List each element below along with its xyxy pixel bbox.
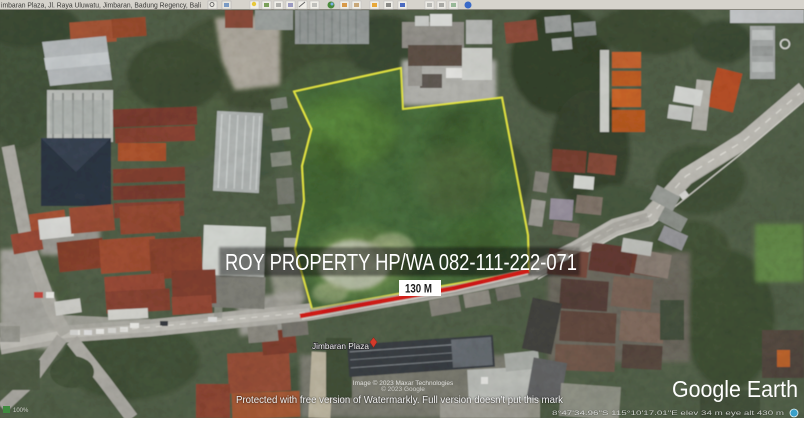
svg-text:130 M: 130 M xyxy=(405,282,432,296)
svg-text:ROY PROPERTY HP/WA 082-111-222: ROY PROPERTY HP/WA 082-111-222-071 xyxy=(225,249,577,275)
svg-text:Protected with free version of: Protected with free version of Watermark… xyxy=(236,394,564,406)
svg-text:imbaran Plaza, Jl. Raya Uluwat: imbaran Plaza, Jl. Raya Uluwatu, Jimbara… xyxy=(1,1,201,10)
svg-text:Google Earth: Google Earth xyxy=(672,376,798,402)
svg-text:© 2023 Google: © 2023 Google xyxy=(381,385,425,393)
svg-text:100%: 100% xyxy=(13,408,29,414)
svg-text:Jimbaran Plaza: Jimbaran Plaza xyxy=(312,341,369,351)
svg-text:8°47'34.96"S 115°10'17.01"E: 8°47'34.96"S 115°10'17.01"E elev 34 m ey… xyxy=(552,411,784,417)
